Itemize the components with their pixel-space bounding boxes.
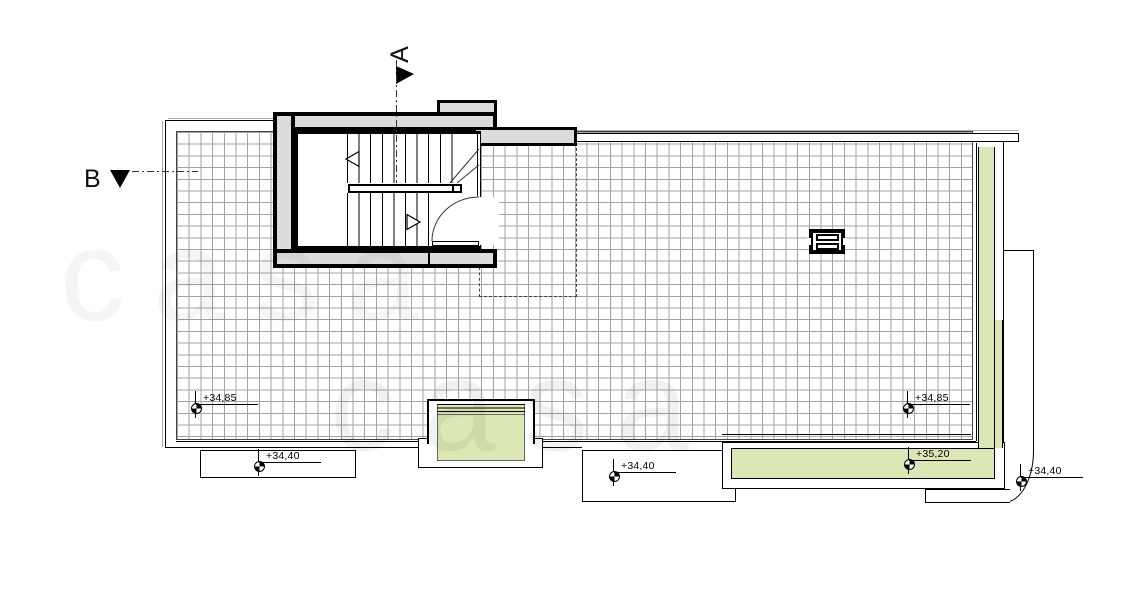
roof-outline-shadow-left [162,121,163,447]
roof-outline-top-left [165,120,274,121]
level-underline [908,404,970,405]
lower-floor-dashed-left [479,267,480,297]
section-a-label: A [386,46,415,63]
level-value: +34,40 [266,450,300,462]
stair-flight-lower [347,193,430,246]
stairwell-wall-bottom [273,249,497,268]
level-underline [259,462,321,463]
level-marker-3: +34,40 [609,459,689,495]
roof-outline-bottom-b [543,447,582,448]
level-marker-2: +34,40 [254,449,334,485]
level-underline [196,404,258,405]
section-b-line [132,171,198,172]
stairwell-wall-top [273,112,497,131]
rooftop-unit-notch-right [843,238,847,245]
level-marker-4: +34,85 [903,391,983,427]
roof-plan-drawing: A B +34,85 +34,40 +34,40 +34,85 +35,20 [0,0,1146,601]
level-marker-1: +34,85 [191,391,271,427]
level-marker-5: +35,20 [904,447,984,483]
level-underline [909,460,971,461]
level-marker-6: +34,40 [1016,464,1096,500]
section-b-label: B [84,165,101,194]
stair-door-opening [475,197,499,245]
lower-terrace-right-tab [925,489,1010,503]
rooftop-unit-notch-left [807,238,811,245]
stair-railing [348,184,462,193]
section-b-flag-icon [110,170,130,188]
section-a-flag-icon [396,66,414,84]
level-value: +34,40 [621,460,655,472]
roof-outline-right [1003,133,1004,251]
section-a-line [396,60,397,183]
level-underline [614,472,676,473]
roof-outline-left [165,120,166,447]
roof-outline-shadow-top [168,118,274,119]
level-underline [1021,477,1083,478]
level-value: +34,85 [915,392,949,404]
stair-railing-endcap [452,184,454,193]
tile-frame-line-bottom-right [722,434,971,435]
stairwell-inner-wall-line [477,131,478,196]
stair-flight-upper [347,134,463,183]
stairwell-wall-divider [428,251,430,266]
rooftop-unit [809,229,845,254]
center-planter-grate [437,404,525,415]
roof-outline-bottom-a [165,447,418,448]
rooftop-unit-slot-2 [816,243,839,250]
stair-door-leaf [432,241,479,246]
stairwell-wing-wall [473,127,577,146]
parapet-shadow-top [577,130,1019,131]
level-value: +35,20 [916,448,950,460]
level-value: +34,40 [1028,465,1062,477]
level-value: +34,85 [203,392,237,404]
planter-strip-right-wide [995,320,1003,448]
rooftop-unit-slot-1 [816,234,839,241]
stairwell-wall-left [273,112,295,268]
